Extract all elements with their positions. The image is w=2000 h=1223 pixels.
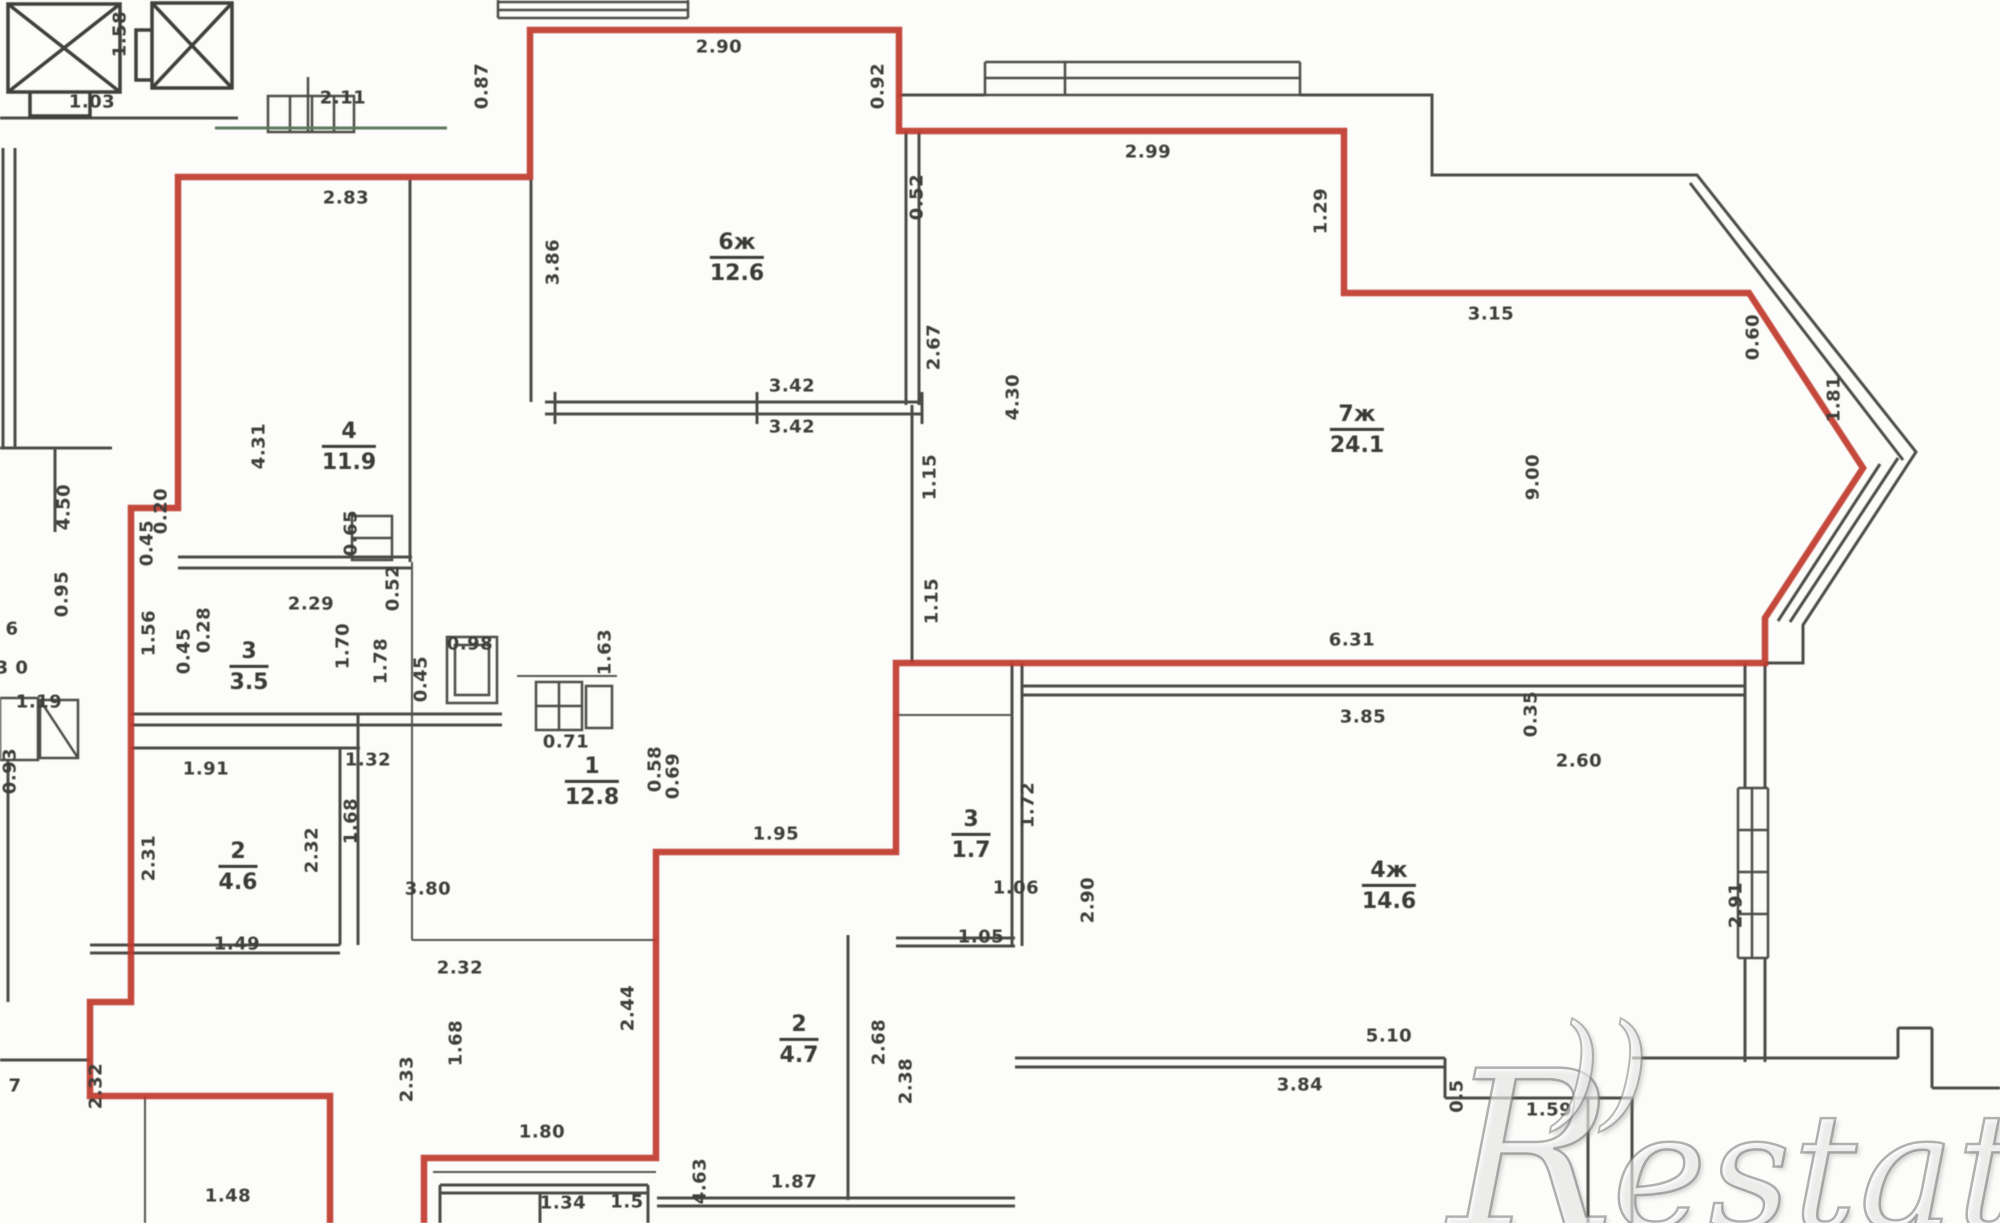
dimension-label: 7 [8, 1076, 21, 1097]
room-number: 3 [230, 640, 269, 668]
dimension-label: 1.48 [205, 1186, 251, 1207]
room-number: 4 [322, 420, 376, 448]
room-label-4: 411.9 [322, 420, 376, 474]
dimension-label: 2.60 [1556, 751, 1602, 772]
dimension-label: 2.33 [397, 1056, 418, 1102]
dimension-label: 0.65 [341, 510, 362, 556]
room-label-6ж: 6ж12.6 [710, 231, 764, 285]
room-area: 1.7 [952, 836, 991, 862]
dimension-label: 2.90 [696, 37, 742, 58]
room-label-2: 24.6 [219, 840, 258, 894]
room-area: 14.6 [1362, 887, 1416, 913]
dimension-label: 1.95 [753, 824, 799, 845]
dimension-label: 0.87 [472, 63, 493, 109]
dimension-label: 2.32 [437, 958, 483, 979]
room-label-7ж: 7ж24.1 [1330, 403, 1384, 457]
dimension-label: 1.05 [958, 927, 1004, 948]
dimension-label: 0.98 [447, 634, 493, 655]
dimension-label: 3.85 [1340, 707, 1386, 728]
room-area: 24.1 [1330, 431, 1384, 457]
dimension-label: 6.31 [1329, 630, 1375, 651]
dimension-label: 5.10 [1366, 1026, 1412, 1047]
dimension-label: 2.67 [924, 324, 945, 370]
room-area: 3.5 [230, 668, 269, 694]
dimension-label: 0.52 [383, 565, 404, 611]
outer-walls [0, 95, 1916, 1060]
room-label-4ж: 4ж14.6 [1362, 859, 1416, 913]
dimension-label: 3.42 [769, 376, 815, 397]
room-label-2: 24.7 [780, 1013, 819, 1067]
dimension-label: 2.91 [1726, 882, 1747, 928]
dimension-label: 3.80 [405, 879, 451, 900]
dimension-label: 2.31 [139, 835, 160, 881]
room-number: 7ж [1330, 403, 1384, 431]
dimension-label: 2.83 [323, 188, 369, 209]
dimension-label: 0.52 [907, 174, 928, 220]
dimension-label: 1.78 [371, 638, 392, 684]
dimension-label: 2.99 [1125, 142, 1171, 163]
dimension-label: 1.19 [16, 692, 62, 713]
dimension-label: 2.32 [302, 827, 323, 873]
dimension-label: 1.15 [922, 578, 943, 624]
dimension-label: 2.11 [320, 88, 366, 109]
dimension-label: 1.91 [183, 759, 229, 780]
room-area: 11.9 [322, 448, 376, 474]
dimension-label: 4.31 [249, 423, 270, 469]
dimension-label: 9.00 [1523, 454, 1544, 500]
dimension-label: 1.34 [540, 1193, 586, 1214]
dimension-label: 2.32 [86, 1063, 107, 1109]
dimension-label: 1.15 [920, 454, 941, 500]
dimension-label: 0.92 [868, 63, 889, 109]
room-area: 4.6 [219, 868, 258, 894]
room-number: 6ж [710, 231, 764, 259]
dimension-label: 3.84 [1277, 1075, 1323, 1096]
dimension-label: 0.60 [1743, 314, 1764, 360]
scan-layer: 2.111.581.032.830.872.900.920.522.991.29… [0, 0, 2000, 1223]
room-label-3: 33.5 [230, 640, 269, 694]
dimension-label: 2.90 [1078, 877, 1099, 923]
dimension-label: 0.35 [1521, 691, 1542, 737]
room-area: 4.7 [780, 1041, 819, 1067]
dimension-label: 1.58 [110, 11, 131, 57]
dimension-label: 1.56 [139, 610, 160, 656]
dimension-label: 1.49 [214, 934, 260, 955]
dimension-label: 4.50 [54, 484, 75, 530]
dimension-label: 1.29 [1311, 188, 1332, 234]
dimension-label: 2.44 [618, 985, 639, 1031]
dimension-label: 1.32 [345, 750, 391, 771]
dimension-label: 6 [5, 619, 18, 640]
dimension-label: 1.72 [1018, 782, 1039, 828]
dimension-label: 1.03 [69, 92, 115, 113]
dimension-label: 1.87 [771, 1172, 817, 1193]
dimension-label: 2.68 [869, 1019, 890, 1065]
room-label-3: 31.7 [952, 808, 991, 862]
dimension-label: 1.68 [446, 1020, 467, 1066]
room-number: 3 [952, 808, 991, 836]
watermark-brand-text: estate [1612, 1092, 2000, 1223]
dimension-label: 2.29 [288, 594, 334, 615]
dimension-label: 0.45 [174, 628, 195, 674]
dimension-label: 1.5 [610, 1192, 643, 1213]
dimension-label: 1.70 [333, 623, 354, 669]
dimension-label: 0.28 [194, 607, 215, 653]
dimension-label: 0.45 [411, 656, 432, 702]
room-area: 12.6 [710, 259, 764, 285]
dimension-label: 0.69 [663, 753, 684, 799]
dimension-label: 3.42 [769, 417, 815, 438]
dimension-label: 1.80 [519, 1122, 565, 1143]
dimension-label: 3 0 [0, 658, 28, 679]
room-number: 2 [780, 1013, 819, 1041]
room-number: 1 [565, 755, 619, 783]
dimension-label: 0.95 [52, 571, 73, 617]
dimension-label: 0.45 [137, 520, 158, 566]
dimension-label: 1.06 [993, 878, 1039, 899]
dimension-label: 3.15 [1468, 304, 1514, 325]
dimension-label: 1.63 [595, 629, 616, 675]
dimension-label: 0.71 [543, 732, 589, 753]
dimension-label: 4.30 [1003, 374, 1024, 420]
dimension-label: 0.93 [0, 748, 21, 794]
room-area: 12.8 [565, 783, 619, 809]
dimension-label: 1.81 [1824, 376, 1845, 422]
dimension-label: 3.86 [543, 239, 564, 285]
dimension-label: 2.38 [896, 1058, 917, 1104]
room-number: 4ж [1362, 859, 1416, 887]
dimension-label: 4.63 [690, 1158, 711, 1204]
room-number: 2 [219, 840, 258, 868]
floor-plan: 2.111.581.032.830.872.900.920.522.991.29… [0, 0, 2000, 1223]
thin-partitions [145, 562, 1012, 1223]
dimension-label: 1.68 [341, 798, 362, 844]
room-label-1: 112.8 [565, 755, 619, 809]
